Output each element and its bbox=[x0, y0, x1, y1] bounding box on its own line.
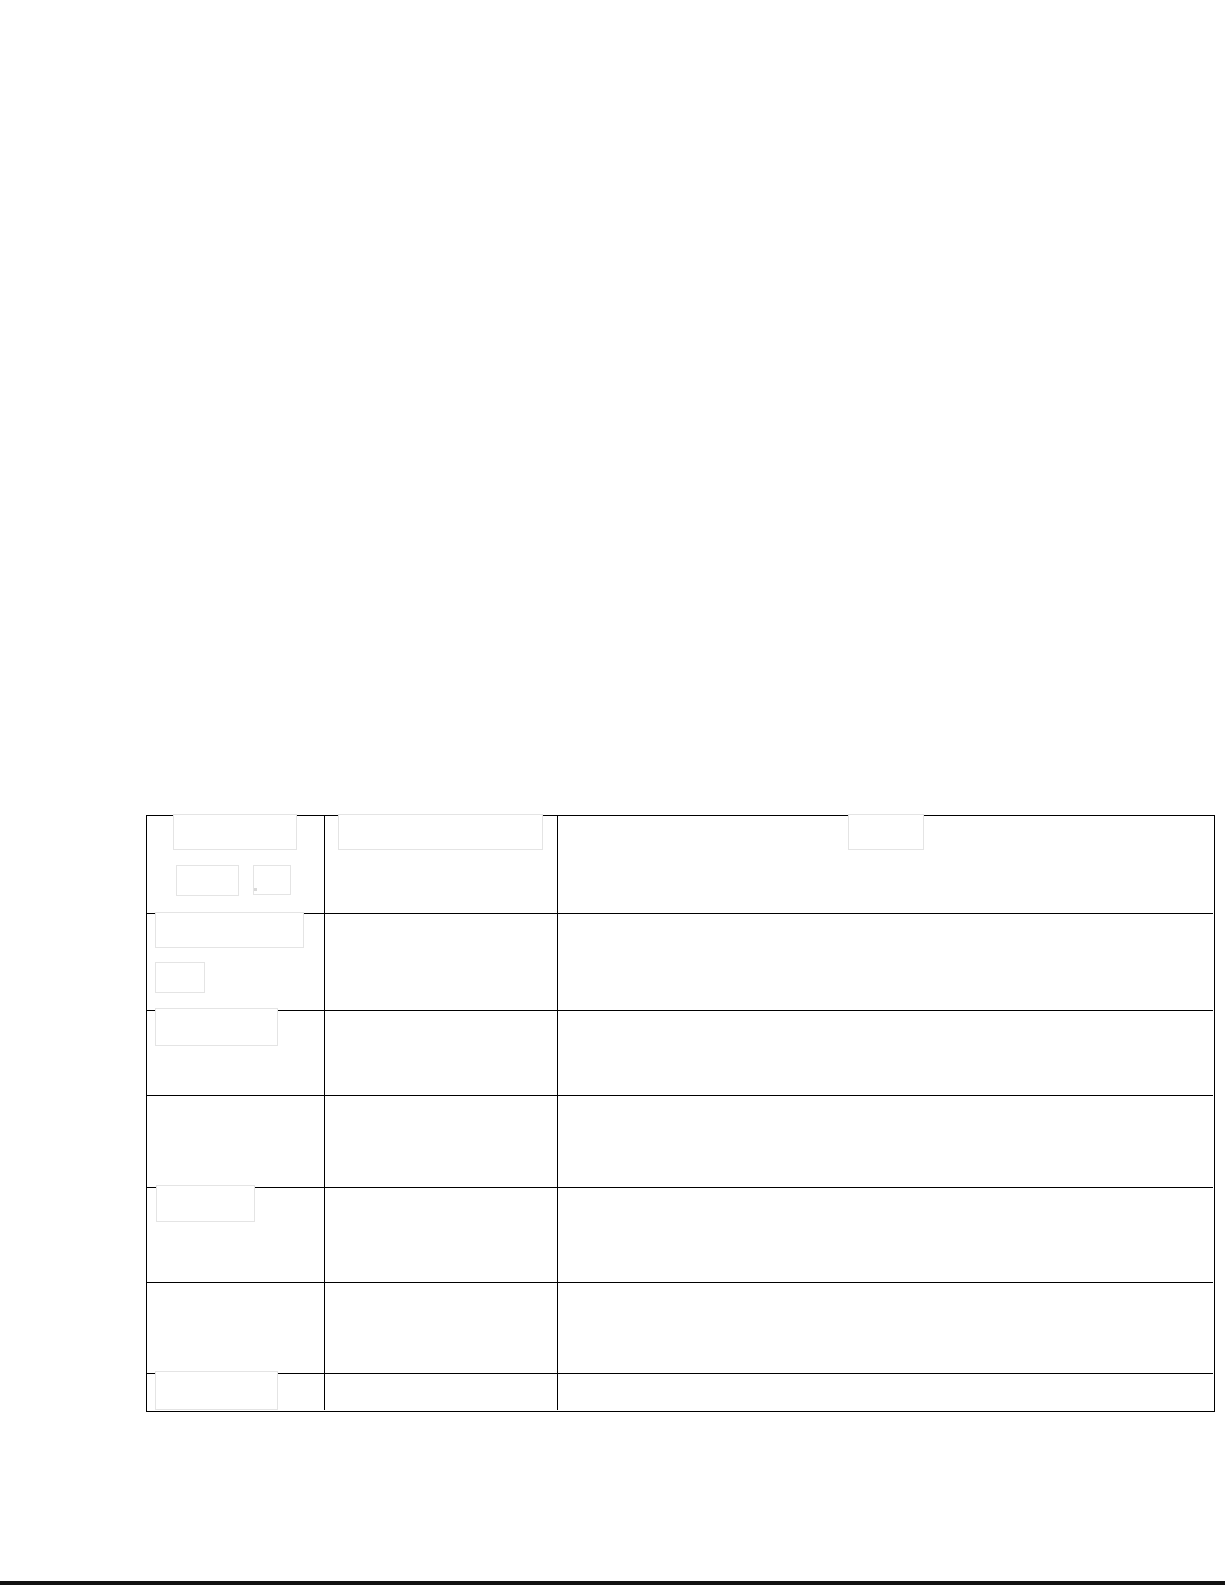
table-cell-r6c1 bbox=[147, 1283, 325, 1374]
redaction-box-row5-col1 bbox=[156, 1185, 255, 1222]
table-cell-r6c2 bbox=[325, 1283, 558, 1374]
table-cell-r2c2 bbox=[325, 914, 558, 1011]
redaction-box-row3-col1 bbox=[155, 1008, 278, 1046]
table-cell-r6c3 bbox=[558, 1283, 1213, 1374]
redaction-box-row1-col2 bbox=[338, 814, 543, 850]
table-cell-r3c3 bbox=[558, 1011, 1213, 1096]
scanned-page bbox=[0, 0, 1225, 1585]
table-cell-r4c1 bbox=[147, 1096, 325, 1188]
redaction-box-row1-col1-a bbox=[173, 814, 297, 850]
table-cell-r3c2 bbox=[325, 1011, 558, 1096]
document-table bbox=[146, 815, 1215, 1412]
table-cell-r7c2 bbox=[325, 1374, 558, 1410]
table-cell-r5c2 bbox=[325, 1188, 558, 1283]
table-cell-r7c3 bbox=[558, 1374, 1213, 1410]
redaction-box-row1-col1-c bbox=[253, 865, 291, 895]
page-edge-bar bbox=[0, 1581, 1225, 1585]
redaction-box-row1-col3 bbox=[848, 814, 924, 850]
stray-mark bbox=[254, 888, 257, 891]
table-cell-r4c3 bbox=[558, 1096, 1213, 1188]
redaction-box-row2-col1-a bbox=[155, 912, 304, 948]
table-cell-r2c3 bbox=[558, 914, 1213, 1011]
table-cell-r4c2 bbox=[325, 1096, 558, 1188]
redaction-box-row1-col1-b bbox=[176, 865, 239, 896]
table-cell-r5c3 bbox=[558, 1188, 1213, 1283]
redaction-box-row7-col1 bbox=[155, 1371, 278, 1410]
redaction-box-row2-col1-b bbox=[155, 962, 205, 993]
